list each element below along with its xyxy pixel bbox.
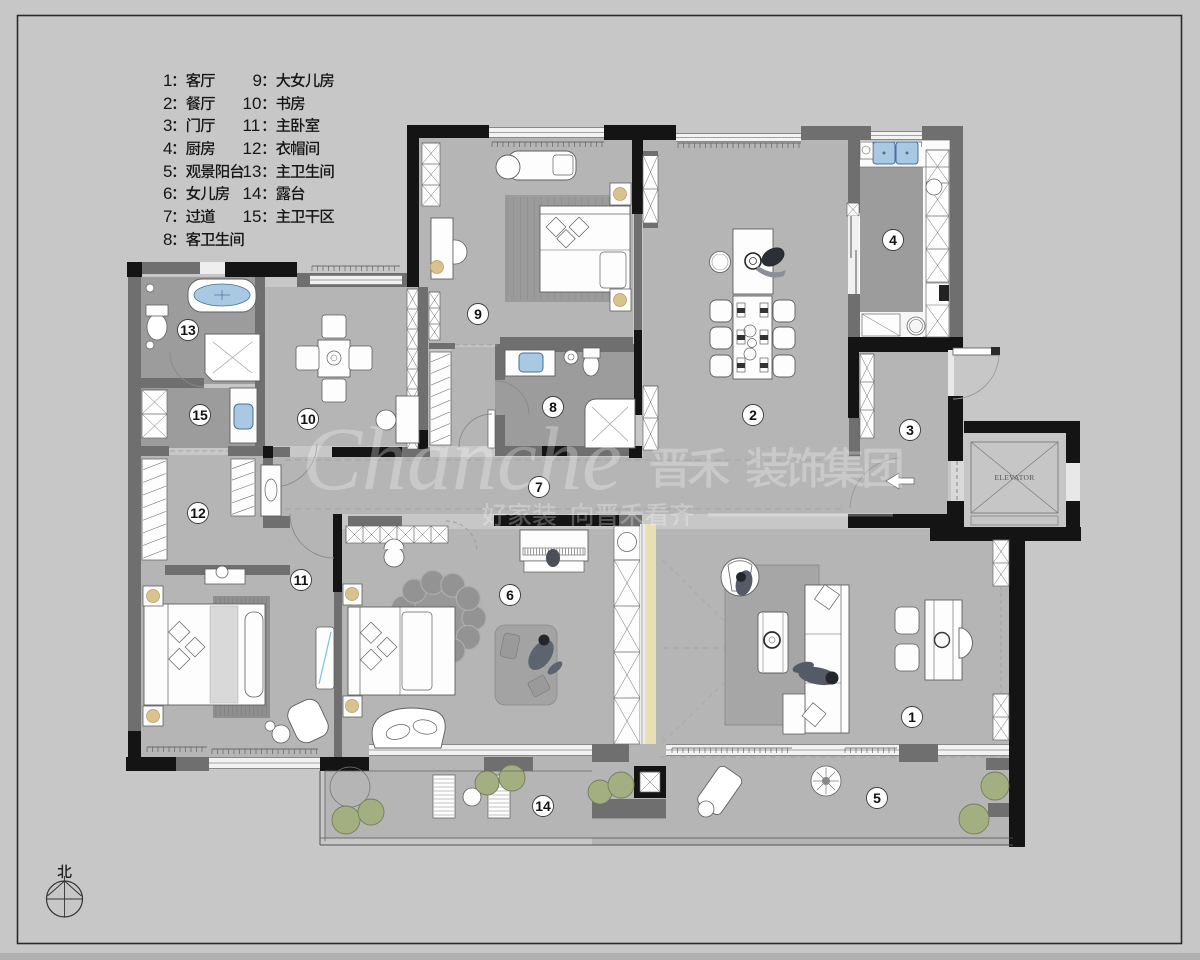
svg-text:14: 14	[243, 184, 262, 203]
svg-text:13: 13	[180, 322, 196, 338]
svg-text:8: 8	[163, 230, 172, 249]
svg-text:11: 11	[294, 572, 309, 588]
svg-text:12: 12	[190, 505, 206, 521]
svg-text:7: 7	[163, 207, 172, 226]
svg-text:6: 6	[163, 184, 172, 203]
svg-text:10: 10	[243, 94, 262, 113]
svg-text:4: 4	[163, 139, 172, 158]
svg-text:2: 2	[163, 94, 172, 113]
svg-text:1: 1	[163, 71, 172, 90]
svg-text:3: 3	[163, 116, 172, 135]
svg-text:15: 15	[243, 207, 262, 226]
svg-text:2: 2	[749, 407, 757, 423]
svg-text:ELEVATOR: ELEVATOR	[994, 473, 1034, 482]
svg-text:11: 11	[243, 116, 261, 135]
svg-text:13: 13	[243, 162, 262, 181]
svg-text:6: 6	[506, 587, 514, 603]
svg-text:14: 14	[535, 798, 551, 814]
svg-text:Chanche: Chanche	[302, 410, 622, 509]
svg-text:15: 15	[192, 407, 208, 423]
svg-text:5: 5	[873, 790, 881, 806]
svg-text:3: 3	[906, 422, 914, 438]
svg-text:5: 5	[163, 162, 172, 181]
svg-text:12: 12	[243, 139, 262, 158]
svg-text:4: 4	[889, 232, 897, 248]
svg-text:9: 9	[474, 306, 482, 322]
svg-text:1: 1	[908, 709, 916, 725]
svg-text:9: 9	[253, 71, 262, 90]
